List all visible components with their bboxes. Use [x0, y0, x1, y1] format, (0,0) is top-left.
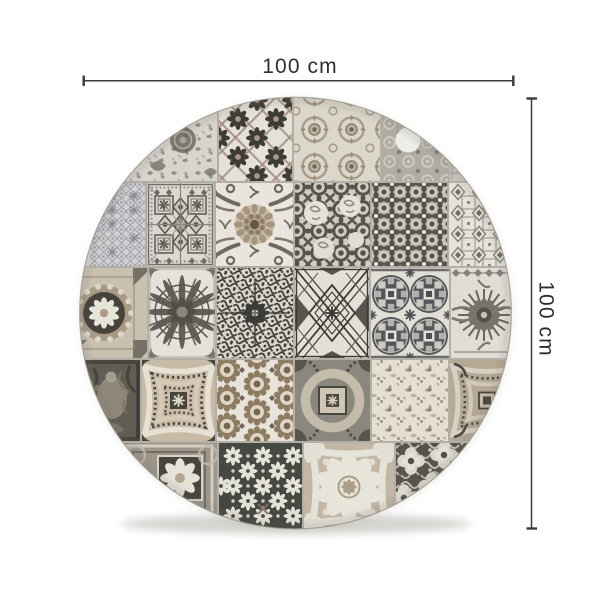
svg-text:100 cm: 100 cm — [535, 281, 558, 356]
svg-text:100 cm: 100 cm — [262, 55, 337, 78]
